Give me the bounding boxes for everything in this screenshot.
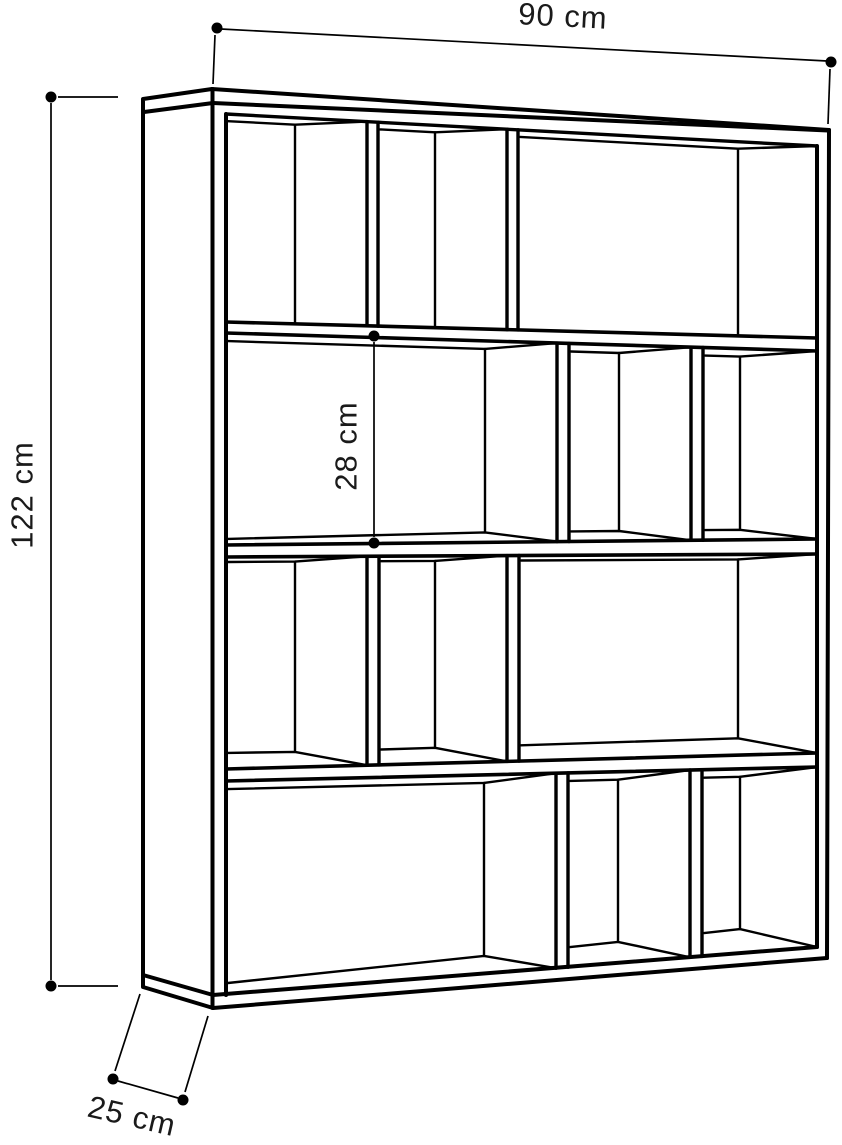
shelf-2-bottom xyxy=(226,554,817,557)
depth-dimension xyxy=(108,994,209,1106)
height-dimension-label: 122 cm xyxy=(5,441,40,549)
width-extension-left xyxy=(213,35,215,84)
left-panel-top-inner-edge xyxy=(144,103,213,112)
row3-comp1-floor-back xyxy=(228,752,367,765)
row4-comp3-floor-back xyxy=(704,929,817,947)
width-dimension-label: 90 cm xyxy=(517,0,608,36)
dimension-endpoint-dot xyxy=(46,92,57,103)
inner-height-dimension xyxy=(369,331,380,549)
row1-comp2-ceiling-back xyxy=(380,129,507,132)
vertical-dividers xyxy=(367,122,703,969)
dimension-endpoint-dot xyxy=(46,981,57,992)
row2-comp2-floor-back xyxy=(571,531,691,540)
depth-dimension-line xyxy=(118,1081,178,1098)
bookcase-diagram: 90 cm 122 cm 28 cm 25 cm xyxy=(0,0,842,1145)
interior-depth-lines xyxy=(228,121,817,983)
row3-comp3-floor-back xyxy=(521,738,817,753)
dimension-endpoint-dot xyxy=(178,1095,189,1106)
depth-dimension-label: 25 cm xyxy=(84,1089,179,1143)
height-dimension xyxy=(46,92,119,992)
dimension-endpoint-dot xyxy=(212,23,223,34)
bookcase-outer-frame xyxy=(143,89,829,1008)
depth-extension-front xyxy=(185,1016,208,1092)
row2-comp3-floor-back xyxy=(705,530,817,539)
depth-extension-back xyxy=(115,994,140,1071)
row2-comp1-floor-back xyxy=(228,532,557,541)
dimension-endpoint-dot xyxy=(369,538,380,549)
row2-comp3-ceiling-back xyxy=(705,351,817,357)
row2-comp2-ceiling-back xyxy=(571,347,691,353)
width-dimension-line xyxy=(221,29,827,61)
bottom-outer-edge xyxy=(213,958,827,1008)
shelf-boards xyxy=(226,322,817,781)
dimension-endpoint-dot xyxy=(826,57,837,68)
bottom-inner-edge xyxy=(213,947,817,995)
dimension-endpoint-dot xyxy=(108,1074,119,1085)
dimension-endpoint-dot xyxy=(369,331,380,342)
left-side-panel xyxy=(143,89,213,1008)
inner-height-dimension-label: 28 cm xyxy=(329,401,364,490)
row4-comp2-floor-back xyxy=(570,942,690,957)
row3-comp2-floor-back xyxy=(381,748,507,762)
width-extension-right xyxy=(828,69,830,124)
right-wall-outer-edge xyxy=(827,130,829,958)
dimension-drawing-page: 90 cm 122 cm 28 cm 25 cm xyxy=(0,0,842,1145)
ceiling-line xyxy=(226,114,817,146)
shelf-2-top xyxy=(226,539,817,545)
row1-comp1-ceiling-back xyxy=(228,121,367,125)
